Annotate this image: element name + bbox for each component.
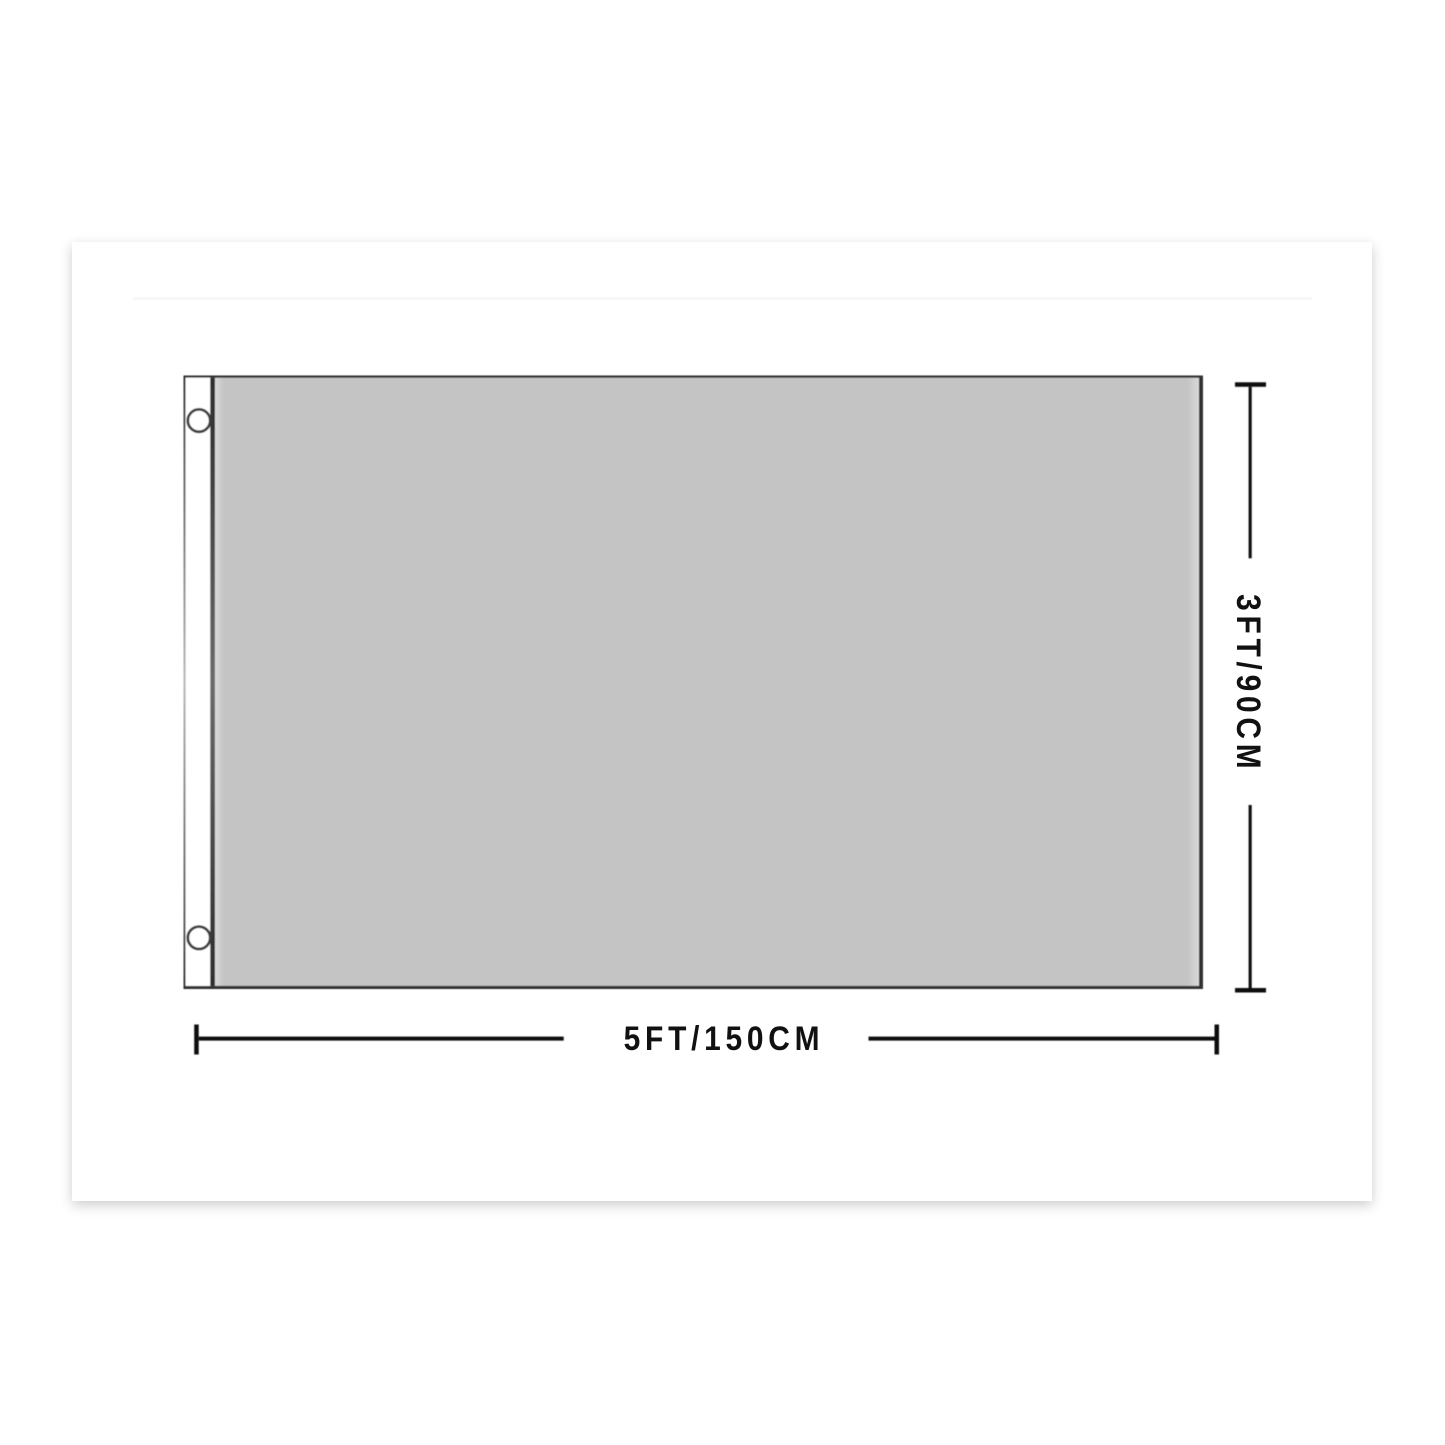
svg-text:5FT/150CM: 5FT/150CM <box>624 1019 825 1057</box>
svg-text:3FT/90CM: 3FT/90CM <box>1230 594 1268 773</box>
